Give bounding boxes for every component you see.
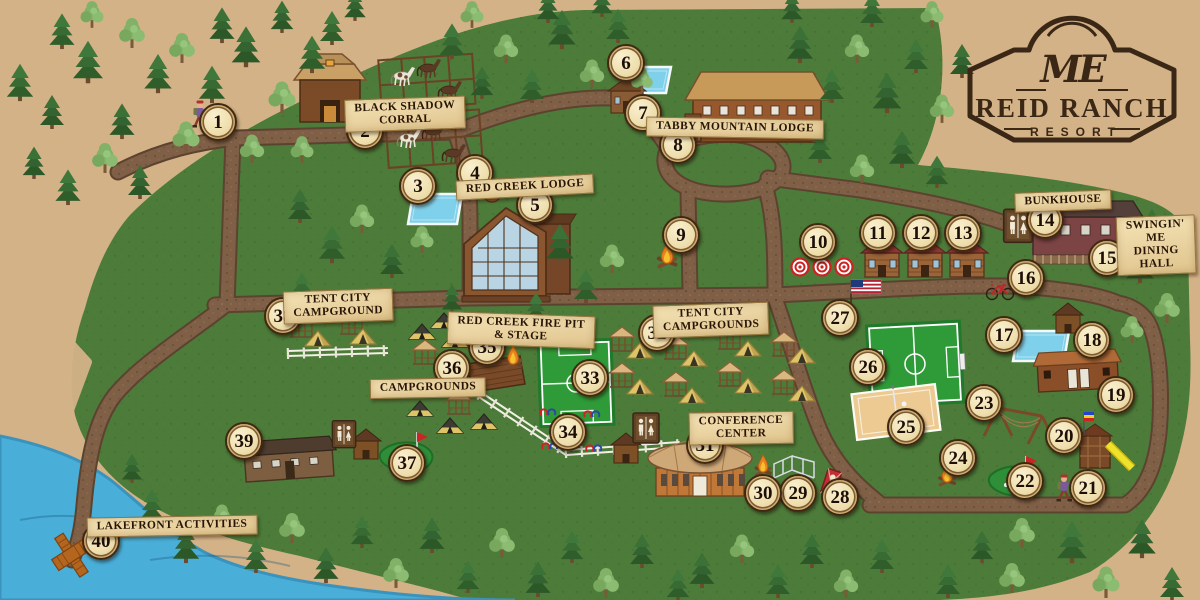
map-label-tent-city-campground: TENT CITY CAMPGROUND bbox=[283, 288, 394, 325]
pine-tree-icon bbox=[7, 64, 33, 101]
map-marker-27[interactable]: 27 bbox=[821, 299, 859, 337]
map-marker-24[interactable]: 24 bbox=[939, 439, 977, 477]
map-marker-17[interactable]: 17 bbox=[985, 316, 1023, 354]
map-marker-10[interactable]: 10 bbox=[799, 223, 837, 261]
map-label-campgrounds: CAMPGROUNDS bbox=[370, 377, 487, 399]
pine-tree-icon bbox=[73, 41, 103, 84]
map-marker-9[interactable]: 9 bbox=[662, 216, 700, 254]
map-marker-16[interactable]: 16 bbox=[1007, 259, 1045, 297]
map-label-swingin-me-dining-hall: SWINGIN' ME DINING HALL bbox=[1116, 214, 1197, 275]
map-marker-12[interactable]: 12 bbox=[902, 214, 940, 252]
map-marker-3[interactable]: 3 bbox=[399, 167, 437, 205]
pine-tree-icon bbox=[344, 0, 366, 21]
map-label-tabby-mountain-lodge: TABBY MOUNTAIN LODGE bbox=[646, 117, 824, 140]
map-marker-33[interactable]: 33 bbox=[571, 359, 609, 397]
deciduous-tree-icon bbox=[169, 33, 195, 63]
map-marker-22[interactable]: 22 bbox=[1006, 462, 1044, 500]
map-marker-39[interactable]: 39 bbox=[225, 422, 263, 460]
pine-tree-icon bbox=[144, 54, 172, 93]
targets-icon bbox=[792, 259, 853, 276]
pine-tree-icon bbox=[860, 0, 884, 27]
map-marker-21[interactable]: 21 bbox=[1069, 469, 1107, 507]
map-marker-37[interactable]: 37 bbox=[388, 444, 426, 482]
pine-tree-icon bbox=[320, 11, 344, 45]
deciduous-tree-icon bbox=[81, 1, 104, 28]
map-label-bunkhouse: BUNKHOUSE bbox=[1014, 189, 1112, 212]
resort-map: 1234567891011121314151617181920212223242… bbox=[0, 0, 1200, 600]
pine-tree-icon bbox=[232, 26, 261, 67]
map-marker-25[interactable]: 25 bbox=[887, 408, 925, 446]
pine-tree-icon bbox=[109, 103, 134, 139]
pine-tree-icon bbox=[950, 44, 974, 78]
map-marker-30[interactable]: 30 bbox=[744, 474, 782, 512]
map-marker-29[interactable]: 29 bbox=[779, 474, 817, 512]
pine-tree-icon bbox=[49, 13, 74, 49]
pine-tree-icon bbox=[23, 147, 46, 179]
map-label-black-shadow-corral: BLACK SHADOW CORRAL bbox=[344, 96, 466, 133]
restroom-icon bbox=[633, 413, 659, 443]
map-label-lakefront-activities: LAKEFRONT ACTIVITIES bbox=[87, 515, 258, 538]
map-marker-19[interactable]: 19 bbox=[1097, 376, 1135, 414]
pine-tree-icon bbox=[271, 1, 294, 33]
map-label-conference-center: CONFERENCE CENTER bbox=[688, 411, 793, 446]
map-label-red-creek-fire-pit-stage: RED CREEK FIRE PIT & STAGE bbox=[447, 311, 596, 349]
map-marker-18[interactable]: 18 bbox=[1073, 321, 1111, 359]
pine-tree-icon bbox=[209, 7, 234, 43]
pine-tree-icon bbox=[55, 169, 80, 205]
map-marker-6[interactable]: 6 bbox=[607, 44, 645, 82]
map-marker-28[interactable]: 28 bbox=[821, 478, 859, 516]
map-marker-23[interactable]: 23 bbox=[965, 384, 1003, 422]
map-canvas bbox=[0, 0, 1200, 600]
map-label-tent-city-campgrounds: TENT CITY CAMPGROUNDS bbox=[652, 302, 769, 339]
pine-tree-icon bbox=[199, 66, 225, 103]
map-marker-11[interactable]: 11 bbox=[859, 214, 897, 252]
map-marker-34[interactable]: 34 bbox=[549, 413, 587, 451]
map-marker-13[interactable]: 13 bbox=[944, 214, 982, 252]
deciduous-tree-icon bbox=[119, 18, 145, 48]
restroom-icon bbox=[332, 421, 355, 448]
pine-tree-icon bbox=[40, 95, 64, 129]
map-marker-20[interactable]: 20 bbox=[1045, 417, 1083, 455]
deciduous-tree-icon bbox=[461, 1, 484, 28]
map-marker-26[interactable]: 26 bbox=[849, 348, 887, 386]
map-marker-1[interactable]: 1 bbox=[199, 103, 237, 141]
